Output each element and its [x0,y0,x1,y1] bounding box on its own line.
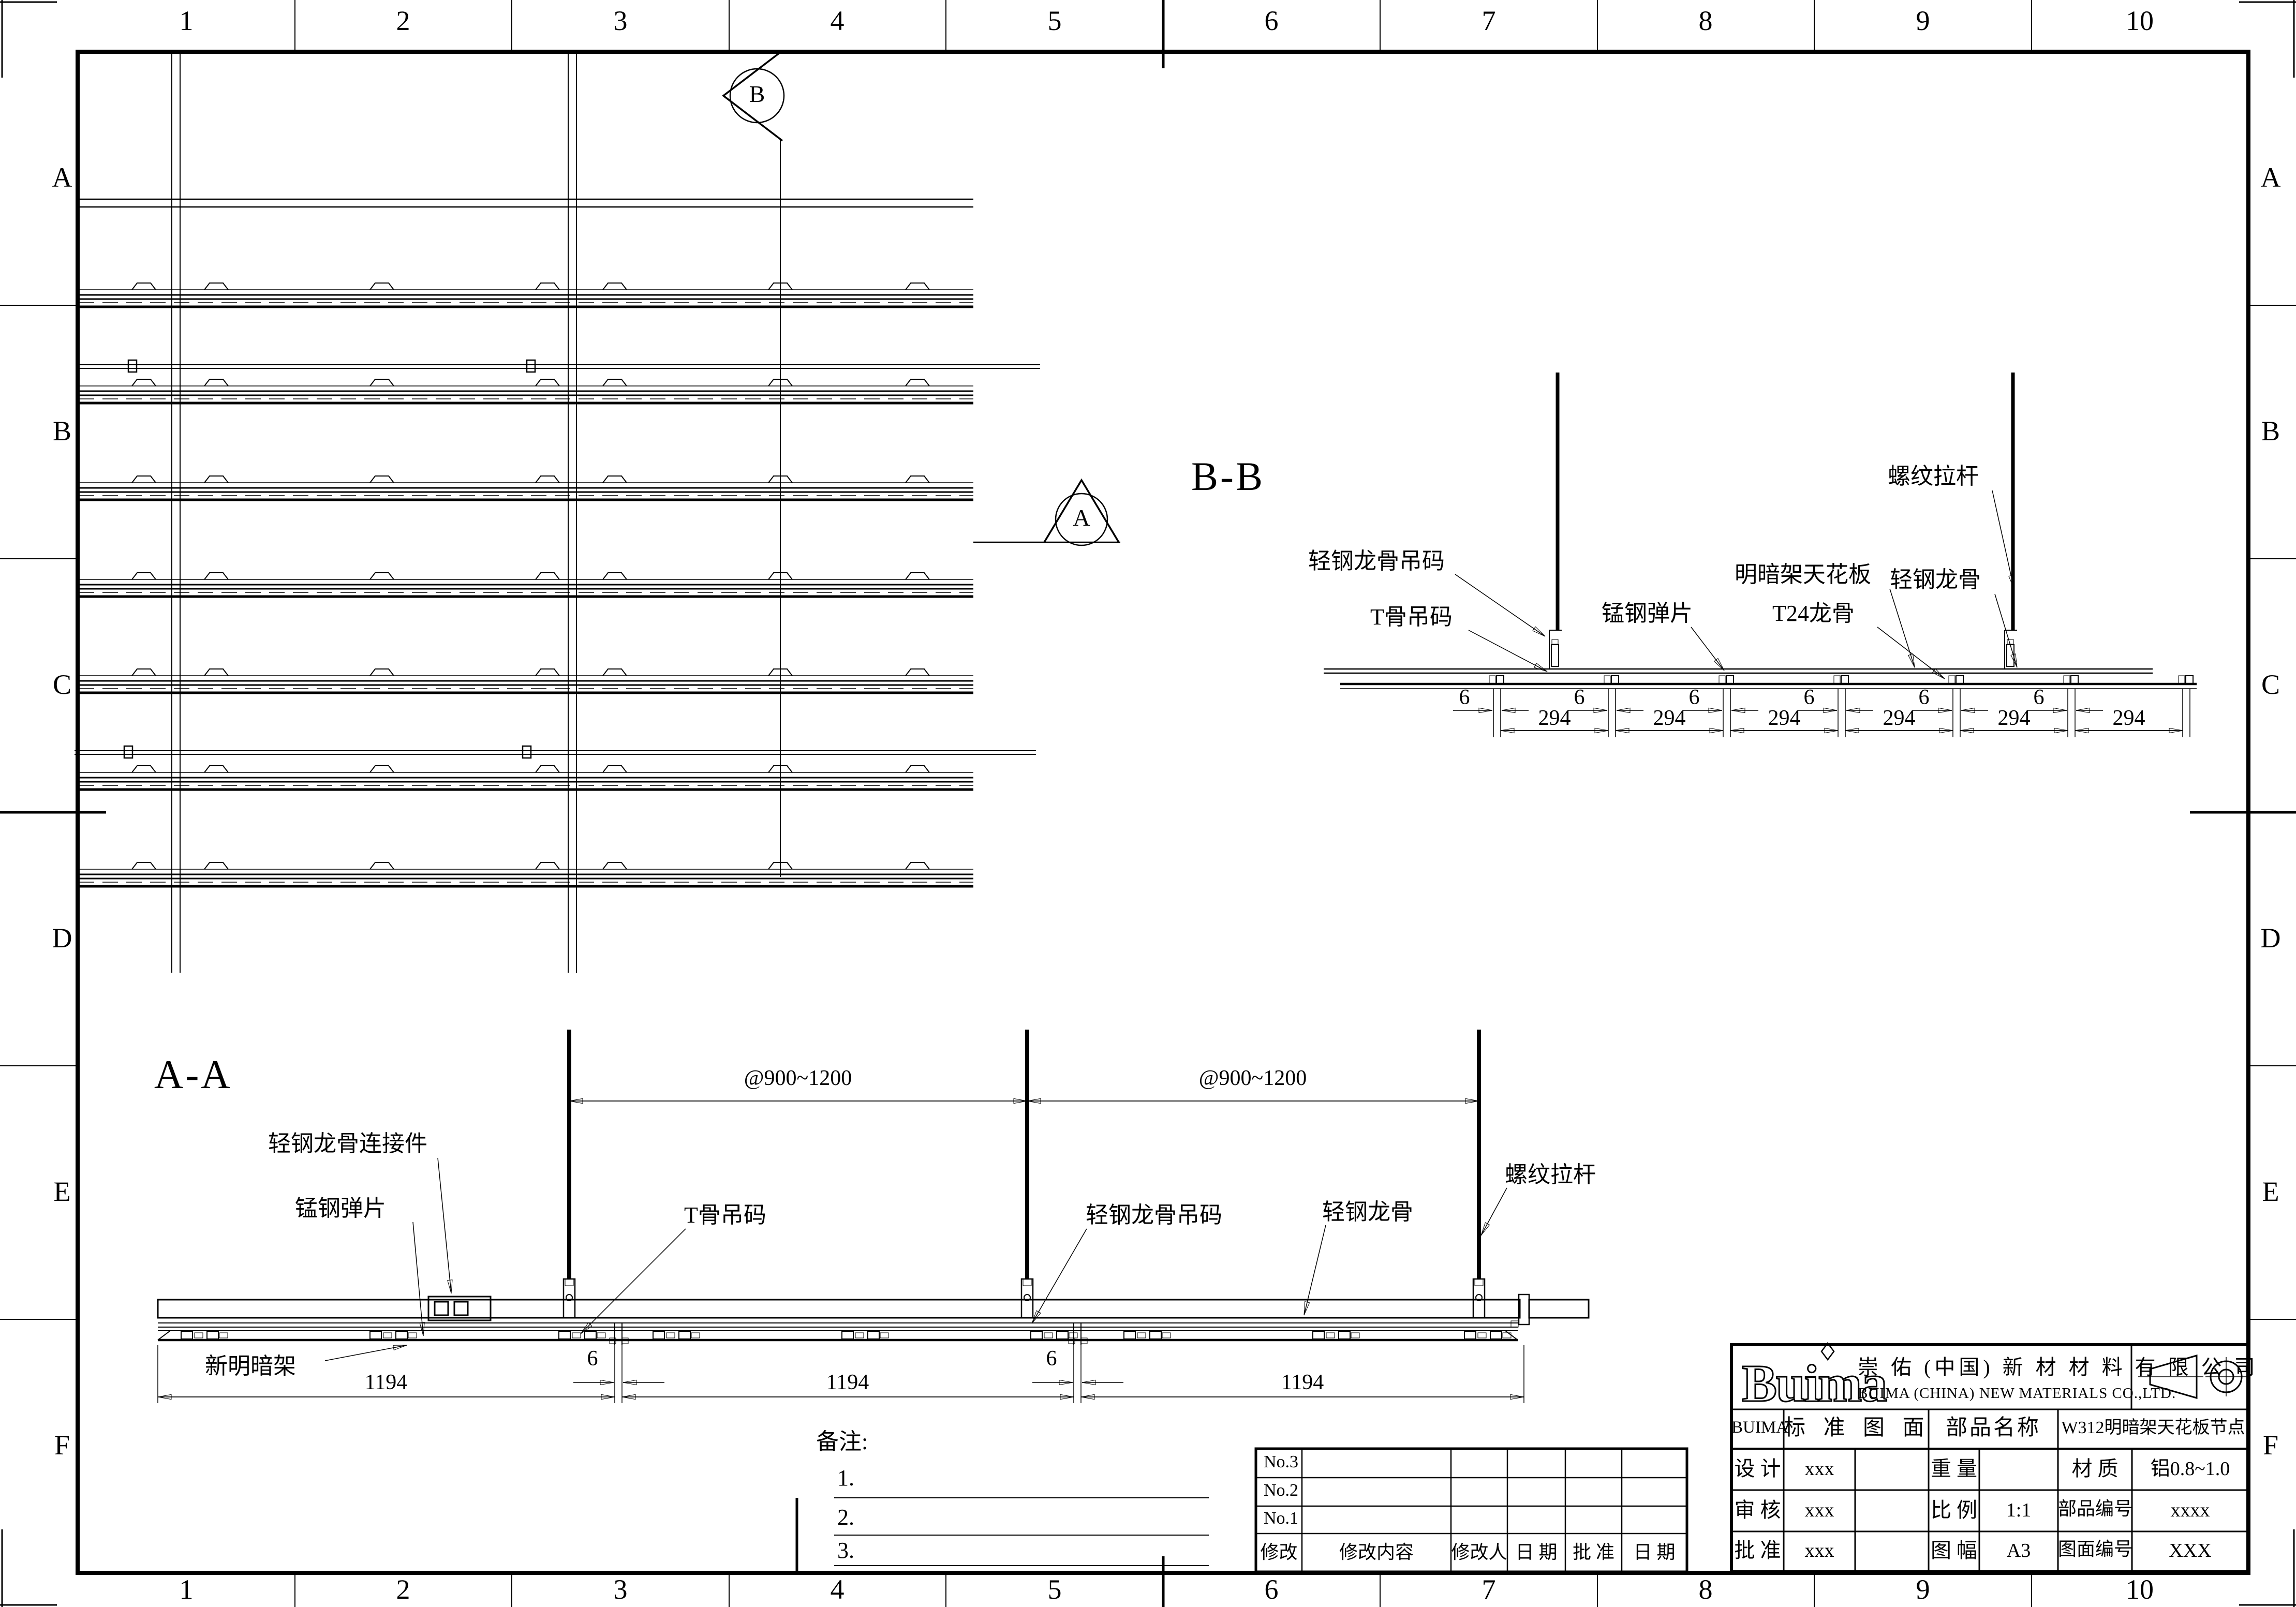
aa-dim-1194: 1194 [811,1371,884,1394]
col-label-bottom: 7 [1468,1575,1509,1604]
revision-row-no2: No.2 [1264,1481,1298,1500]
revision-row-no3: No.3 [1264,1453,1298,1471]
revision-header-modifier: 修改人 [1451,1543,1507,1563]
revision-header-modify: 修改 [1256,1543,1302,1563]
col-label-top: 3 [600,6,641,36]
section-marker-a-letter: A [1066,505,1097,530]
notes-lines [834,1498,1209,1566]
tb-check-value: xxx [1784,1500,1855,1521]
bb-dim-294: 294 [2098,707,2160,730]
bb-label-ceiling-panel: 明暗架天花板 [1735,563,1871,587]
revision-header-date2: 日 期 [1622,1543,1687,1563]
bb-dim-294: 294 [1753,707,1815,730]
tb-material-label: 材 质 [2058,1458,2132,1480]
row-label-right: E [2255,1177,2286,1207]
tb-part-no-label: 部品编号 [2058,1499,2132,1519]
col-label-bottom: 3 [600,1575,641,1604]
row-label-left: E [47,1177,78,1207]
bb-label-spring-clip: 锰钢弹片 [1602,602,1693,626]
col-label-bottom: 10 [2119,1575,2160,1604]
section-marker-b [723,51,784,877]
tb-part-name: W312明暗架天花板节点 [2058,1419,2248,1437]
col-label-top: 5 [1034,6,1075,36]
bb-dim-6: 6 [1680,686,1709,709]
col-label-bottom: 1 [166,1575,207,1604]
tb-design-value: xxx [1784,1459,1855,1480]
aa-dim-6: 6 [1037,1347,1066,1370]
col-label-top: 8 [1685,6,1726,36]
row-label-right: B [2255,416,2286,446]
aa-label-tbar-hanger: T骨吊码 [684,1203,766,1227]
aa-label-keel-hanger: 轻钢龙骨吊码 [1086,1203,1222,1227]
row-label-left: F [47,1431,78,1460]
col-label-top: 4 [817,6,858,36]
aa-dim-6: 6 [578,1347,607,1370]
row-label-right: A [2255,163,2286,192]
aa-section-title: A-A [154,1053,232,1096]
tb-material-value: 铝0.8~1.0 [2132,1459,2248,1480]
col-label-bottom: 8 [1685,1575,1726,1604]
note-item-3: 3. [837,1539,854,1563]
section-bb [1324,373,2197,737]
tb-part-no-value: xxxx [2132,1500,2248,1521]
aa-label-spring-clip: 锰钢弹片 [295,1197,386,1221]
row-label-left: C [47,670,78,700]
col-label-top: 7 [1468,6,1509,36]
tb-approve-label: 批 准 [1731,1540,1784,1561]
row-label-right: C [2255,670,2286,700]
bb-label-keel-hanger: 轻钢龙骨吊码 [1308,549,1445,573]
bb-dim-6: 6 [1450,686,1479,709]
tb-design-label: 设 计 [1731,1458,1784,1480]
note-item-2: 2. [837,1506,854,1529]
aa-dim-span: @900~1200 [720,1067,876,1090]
tb-weight-label: 重 量 [1929,1458,1979,1480]
row-label-left: B [47,416,78,446]
col-label-bottom: 6 [1251,1575,1292,1604]
bb-label-steel-keel: 轻钢龙骨 [1890,568,1981,592]
tb-dwg-no-value: XXX [2132,1541,2248,1561]
plan-view [75,54,1040,973]
tb-scale-value: 1:1 [1979,1500,2058,1521]
bb-label-t24-runner: T24龙骨 [1772,602,1855,626]
aa-label-new-frame: 新明暗架 [205,1355,296,1378]
col-label-top: 2 [382,6,424,36]
tb-scale-label: 比 例 [1929,1499,1979,1521]
bb-dim-294: 294 [1983,707,2045,730]
row-label-left: A [47,163,78,192]
col-label-top: 9 [1902,6,1944,36]
revision-header-approve: 批 准 [1565,1543,1622,1563]
bb-dim-6: 6 [1909,686,1938,709]
row-label-left: D [47,924,78,953]
tb-size-label: 图 幅 [1929,1540,1979,1561]
row-label-right: D [2255,924,2286,953]
tb-brand: BUIMA [1731,1419,1784,1437]
aa-dim-1194: 1194 [350,1371,422,1394]
aa-dim-1194: 1194 [1266,1371,1339,1394]
company-name-cn: 崇 佑 (中国) 新 材 材 料 有 限 公 司 [1858,1357,2127,1378]
col-label-bottom: 5 [1034,1575,1075,1604]
bb-label-tbar-hanger: T骨吊码 [1370,605,1453,629]
aa-dim-span: @900~1200 [1175,1067,1330,1090]
section-marker-b-letter: B [742,82,773,107]
aa-label-steel-keel: 轻钢龙骨 [1322,1200,1413,1224]
col-label-bottom: 4 [817,1575,858,1604]
section-marker-a [973,480,1120,545]
note-item-1: 1. [837,1466,854,1490]
revision-row-no1: No.1 [1264,1509,1298,1528]
col-label-bottom: 9 [1902,1575,1944,1604]
bb-label-threaded-rod: 螺纹拉杆 [1888,465,1979,488]
drawing-sheet: Buima 1 2 3 4 5 6 7 8 9 10 1 2 3 4 5 6 7… [0,0,2296,1607]
bb-dim-6: 6 [2024,686,2053,709]
tb-approve-value: xxx [1784,1541,1855,1561]
revision-header-date1: 日 期 [1507,1543,1565,1563]
revision-header-content: 修改内容 [1302,1543,1451,1563]
row-label-right: F [2255,1431,2286,1460]
tb-dwg-no-label: 图面编号 [2058,1540,2132,1559]
bb-dim-6: 6 [1565,686,1594,709]
col-label-top: 6 [1251,6,1292,36]
aa-label-keel-connector: 轻钢龙骨连接件 [268,1132,427,1156]
bb-dim-294: 294 [1868,707,1930,730]
tb-std-drawing: 标 准 图 面 [1784,1417,1929,1439]
bb-dim-294: 294 [1523,707,1586,730]
notes-title: 备注: [816,1430,868,1454]
col-label-top: 10 [2119,6,2160,36]
bb-dim-6: 6 [1795,686,1824,709]
company-name-en: BUIMA (CHINA) NEW MATERIALS CO.,LTD. [1858,1386,2127,1401]
tb-check-label: 审 核 [1731,1499,1784,1521]
tb-size-value: A3 [1979,1541,2058,1561]
aa-label-threaded-rod: 螺纹拉杆 [1505,1163,1596,1187]
col-label-top: 1 [166,6,207,36]
bb-dim-294: 294 [1638,707,1700,730]
tb-part-name-label: 部品名称 [1929,1417,2058,1439]
col-label-bottom: 2 [382,1575,424,1604]
bb-section-title: B-B [1191,455,1265,498]
